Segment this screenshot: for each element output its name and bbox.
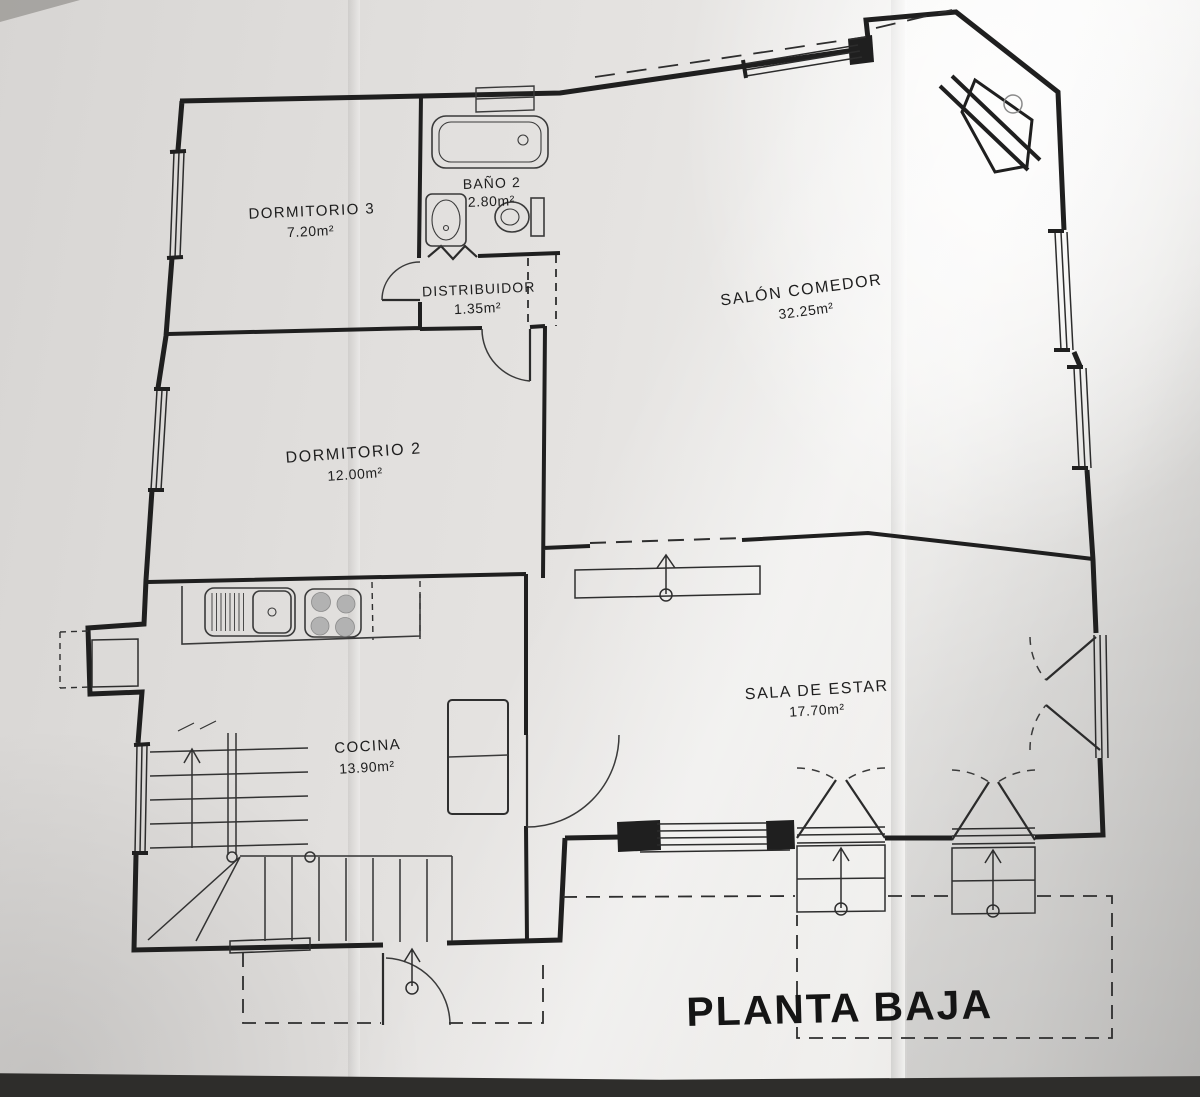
kitchen-fixtures [182,586,508,814]
sink-bowl [253,591,291,633]
label-dormitorio3: DORMITORIO 3 7.20m² [248,200,376,241]
french-door-right-arcs [1030,637,1046,750]
exterior-walls [88,12,1103,950]
toilet-tank [531,198,544,236]
french-door2-leaves [952,782,1035,840]
plan-title: PLANTA BAJA [686,981,994,1035]
staircase [148,721,452,942]
room-area-cocina: 13.90m² [339,757,395,776]
bathroom-niche [476,86,534,112]
kitchen-sink-unit [205,588,295,636]
windows [135,45,1108,853]
french-door2-arcs [952,770,1035,782]
label-distribuidor: DISTRIBUIDOR 1.35m² [422,279,537,319]
stair-treads-lower [265,856,452,942]
stove-burners [311,593,355,637]
bathtub-drain [518,135,528,145]
french-door-right-leaves [1046,637,1100,750]
french-door1-leaves [797,780,885,838]
salon-step [575,566,760,598]
label-bano2: BAÑO 2 2.80m² [463,174,522,210]
room-area-distribuidor: 1.35m² [454,299,502,317]
room-area-sala: 17.70m² [789,700,845,719]
label-dormitorio2: DORMITORIO 2 12.00m² [285,440,423,486]
room-name-dormitorio3: DORMITORIO 3 [248,200,375,223]
door-arc-sala [527,735,619,827]
plan-title-text: PLANTA BAJA [686,981,994,1035]
salon-sala-opening-dashed [590,538,742,543]
stair-break-marks [178,721,216,731]
stair-newel-2 [305,852,315,862]
room-name-dormitorio2: DORMITORIO 2 [285,440,422,466]
door-arc-dormitorio3 [382,262,420,300]
room-area-salon: 32.25m² [777,299,834,322]
kitchen-unit-dashed [60,581,420,688]
stair-winder-lines [148,857,240,941]
door-arc-entry [386,958,450,1025]
room-labels: DORMITORIO 3 7.20m² BAÑO 2 2.80m² DISTRI… [248,174,993,1035]
stair-treads-upper [150,748,308,848]
room-name-sala: SALA DE ESTAR [744,678,889,704]
floor-plan-drawing: DORMITORIO 3 7.20m² BAÑO 2 2.80m² DISTRI… [0,0,1200,1097]
bathtub [432,116,548,168]
wall-piers [617,35,874,852]
folding-door-bathroom [428,246,477,259]
salon-step-arrow [657,555,675,594]
sink-drain [268,608,276,616]
room-name-bano2: BAÑO 2 [463,174,521,192]
label-salon: SALÓN COMEDOR 32.25m² [719,269,886,329]
porch-outline-dashed [243,953,543,1023]
label-sala: SALA DE ESTAR 17.70m² [744,678,890,723]
sink-drainboard [212,593,244,631]
french-door1-arcs [797,768,885,780]
floor-plan-photo: DORMITORIO 3 7.20m² BAÑO 2 2.80m² DISTRI… [0,0,1200,1097]
bathroom-fixtures [426,86,548,246]
room-name-cocina: COCINA [334,736,402,757]
room-area-bano2: 2.80m² [468,192,516,210]
room-area-dormitorio2: 12.00m² [327,464,384,484]
roof-overhang-dashed [595,10,952,77]
label-cocina: COCINA 13.90m² [334,736,403,777]
window-caps [132,60,1088,853]
door-arc-dormitorio2 [482,329,530,381]
side-porch-step [92,639,138,687]
room-name-distribuidor: DISTRIBUIDOR [422,279,536,300]
dashed-lines [60,10,1112,1038]
room-area-dormitorio3: 7.20m² [287,222,335,240]
